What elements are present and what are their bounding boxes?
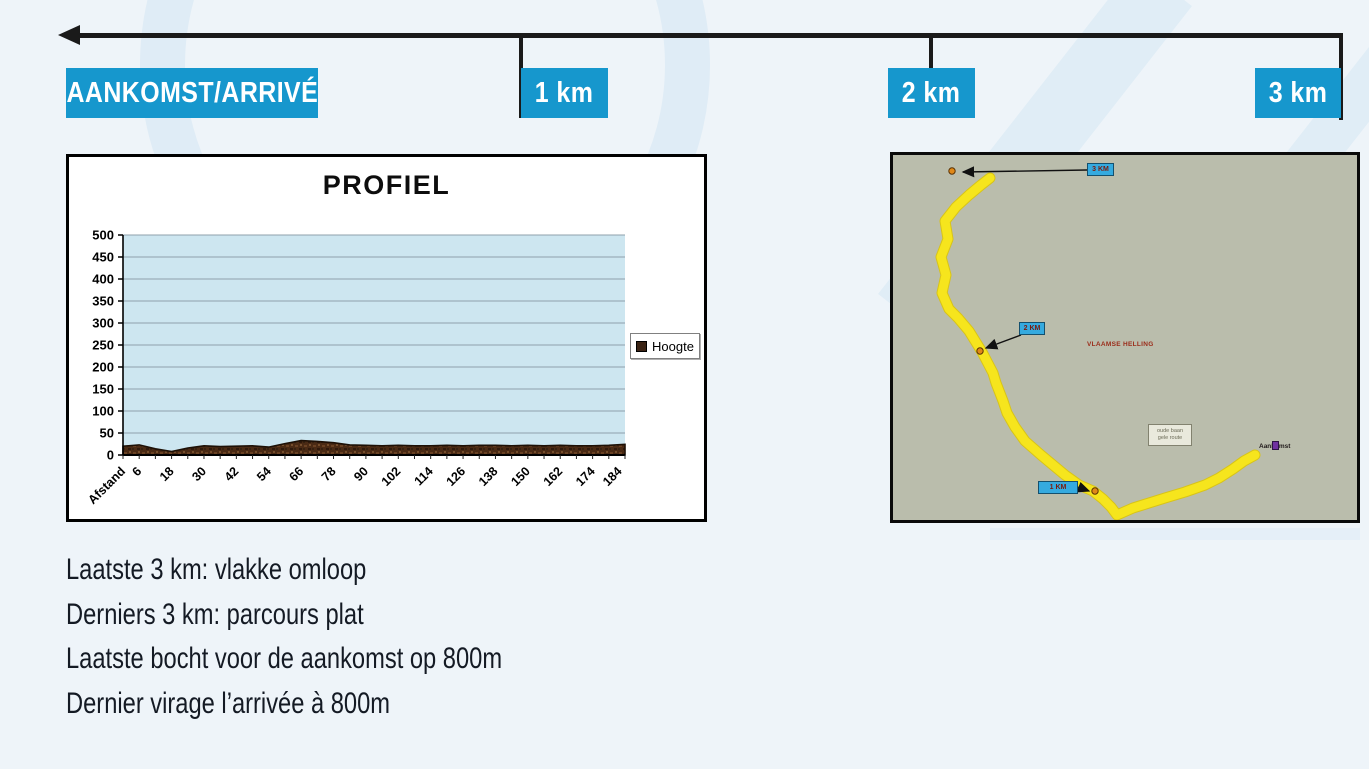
svg-text:200: 200 [92,360,114,375]
svg-text:102: 102 [379,464,404,489]
map-km-label-3km: 3 KM [1087,163,1114,176]
svg-text:400: 400 [92,272,114,287]
svg-text:150: 150 [92,382,114,397]
background-band [990,528,1360,540]
svg-text:150: 150 [508,464,533,489]
chart-legend: Hoogte [630,333,700,359]
svg-text:126: 126 [444,464,469,489]
km-3-label: 3 km [1269,77,1328,110]
svg-text:500: 500 [92,228,114,243]
svg-text:90: 90 [351,464,371,484]
map-region-label: VLAAMSE HELLING [1087,341,1154,348]
svg-text:174: 174 [573,464,598,489]
km-3-box: 3 km [1255,68,1341,118]
arrow-left-icon [58,25,80,45]
svg-text:184: 184 [600,464,625,489]
svg-text:114: 114 [412,464,436,488]
course-map-panel: VLAAMSE HELLING oude baan gele route Aan… [890,152,1360,523]
km-2-box: 2 km [888,68,975,118]
svg-text:350: 350 [92,294,114,309]
svg-text:78: 78 [319,464,339,484]
svg-text:18: 18 [157,464,177,484]
legend-swatch-icon [636,341,647,352]
km-1-box: 1 km [521,68,608,118]
svg-text:54: 54 [254,464,274,484]
notes-block: Laatste 3 km: vlakke omloop Derniers 3 k… [66,548,618,726]
note-line: Dernier virage l’arrivée à 800m [66,682,502,727]
svg-text:30: 30 [189,464,209,484]
svg-text:138: 138 [476,464,501,489]
finish-label: AANKOMST/ARRIVÉ [66,77,318,110]
map-km-label-1km: 1 KM [1038,481,1078,494]
legend-label: Hoogte [652,339,694,354]
km-1-label: 1 km [535,77,594,110]
course-map [893,155,1357,520]
svg-text:50: 50 [100,426,114,441]
note-line: Laatste bocht voor de aankomst op 800m [66,637,502,682]
svg-text:100: 100 [92,404,114,419]
svg-text:300: 300 [92,316,114,331]
finish-label-box: AANKOMST/ARRIVÉ [66,68,318,118]
profile-chart-panel: PROFIEL 050100150200250300350400450500Af… [66,154,707,522]
map-km-label-2km: 2 KM [1019,322,1045,335]
distance-arrow-line [72,33,1343,38]
svg-text:42: 42 [222,464,242,484]
roadbook-page: { "header": { "finish_label": "AANKOMST/… [0,0,1369,769]
km-2-label: 2 km [902,77,961,110]
profile-chart: 050100150200250300350400450500Afstand618… [69,157,704,519]
note-line: Derniers 3 km: parcours plat [66,593,502,638]
svg-text:Afstand: Afstand [85,464,128,507]
svg-text:0: 0 [107,448,114,463]
svg-text:450: 450 [92,250,114,265]
svg-text:66: 66 [287,464,307,484]
svg-text:162: 162 [541,464,566,489]
note-line: Laatste 3 km: vlakke omloop [66,548,502,593]
map-info-line: oude baan [1149,428,1191,435]
svg-text:250: 250 [92,338,114,353]
tick-2km [929,35,933,70]
svg-text:6: 6 [129,464,144,479]
map-info-box: oude baan gele route [1148,424,1192,446]
finish-flag-icon [1272,441,1279,450]
map-info-line: gele route [1149,435,1191,442]
